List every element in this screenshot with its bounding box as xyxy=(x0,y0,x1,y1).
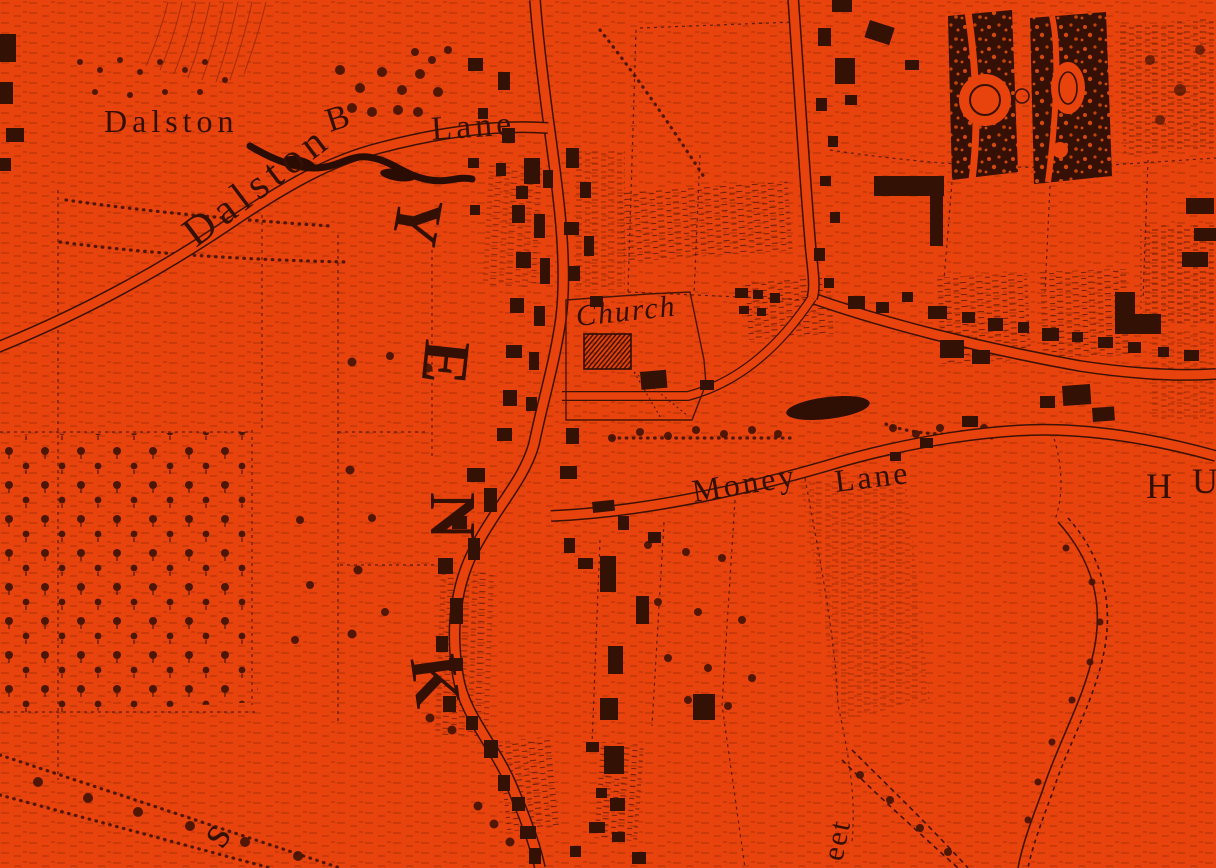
label-hackney-k: K xyxy=(396,651,475,712)
historic-map[interactable]: Dalston Dalston B Lane Church Money Lane… xyxy=(0,0,1216,868)
map-canvas: Dalston Dalston B Lane Church Money Lane… xyxy=(0,0,1216,868)
label-hackney-n: N xyxy=(416,492,489,540)
church-building xyxy=(584,334,631,369)
label-lane-word: Lane xyxy=(430,105,516,148)
label-dalston-settlement: Dalston xyxy=(104,103,239,139)
label-humerton-u: U xyxy=(1192,461,1216,501)
label-hackney-e: E xyxy=(407,337,484,388)
label-humerton-h: H xyxy=(1146,466,1172,506)
orchard xyxy=(0,432,258,716)
